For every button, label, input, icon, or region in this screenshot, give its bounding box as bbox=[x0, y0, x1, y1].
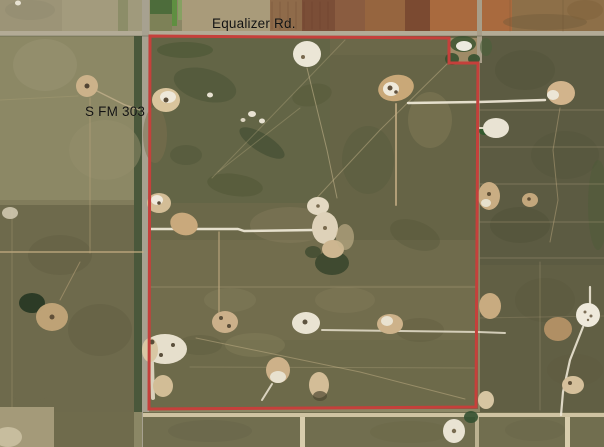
field-patch bbox=[430, 0, 512, 31]
pad-marking bbox=[584, 311, 587, 314]
well-pad bbox=[483, 118, 509, 138]
terrain-mottle bbox=[342, 126, 394, 194]
terrain-mottle bbox=[480, 38, 492, 56]
terrain-mottle bbox=[515, 278, 575, 322]
well-pad bbox=[547, 90, 559, 100]
field-patch-green bbox=[150, 0, 172, 14]
terrain-mottle bbox=[370, 421, 450, 443]
pad-marking bbox=[568, 381, 572, 385]
side-road-surface bbox=[565, 417, 570, 447]
terrain-mottle bbox=[490, 207, 550, 243]
well-pad bbox=[562, 376, 584, 394]
field-patch bbox=[302, 0, 335, 31]
fm303-verge bbox=[134, 36, 142, 412]
well-pad bbox=[576, 303, 600, 327]
pad-marking bbox=[301, 55, 305, 59]
field-patch bbox=[335, 0, 365, 31]
well-pad bbox=[544, 317, 572, 341]
equalizer-road-surface bbox=[0, 31, 604, 36]
pad-marking bbox=[590, 315, 593, 318]
well-pad bbox=[212, 311, 238, 333]
terrain-mottle bbox=[305, 246, 321, 258]
farm-building bbox=[456, 41, 472, 51]
pad-marking bbox=[587, 319, 589, 321]
pad-marking bbox=[527, 197, 531, 201]
field-strip-green bbox=[172, 0, 177, 26]
pad-marking bbox=[452, 429, 456, 433]
terrain-mottle bbox=[5, 0, 55, 20]
well-pad bbox=[481, 199, 491, 207]
pad-marking bbox=[164, 98, 169, 103]
pad-marking bbox=[227, 324, 231, 328]
pad-shadow bbox=[313, 391, 327, 401]
terrain-mottle bbox=[531, 131, 599, 179]
pad-marking bbox=[157, 201, 161, 205]
road-label-s-fm-303: S FM 303 bbox=[85, 104, 145, 119]
pad-marking bbox=[316, 204, 320, 208]
terrain-mottle bbox=[204, 288, 256, 312]
terrain-mottle bbox=[315, 287, 375, 313]
well-pad bbox=[479, 293, 501, 319]
well-pad bbox=[153, 375, 173, 397]
terrain-mottle bbox=[505, 419, 565, 441]
terrain-mottle bbox=[464, 411, 478, 423]
terrain-mottle bbox=[13, 39, 77, 91]
pad-marking bbox=[388, 86, 393, 91]
pad-marking bbox=[85, 84, 90, 89]
terrain-mottle bbox=[157, 42, 213, 58]
map-svg bbox=[0, 0, 604, 447]
terrain-mottle bbox=[143, 107, 167, 163]
well-pad bbox=[151, 195, 163, 205]
pad-marking bbox=[50, 315, 55, 320]
pad-marking bbox=[487, 192, 491, 196]
road-label-equalizer: Equalizer Rd. bbox=[212, 16, 296, 31]
well-pad bbox=[293, 41, 321, 67]
farm-building bbox=[207, 93, 213, 98]
well-pad bbox=[381, 316, 393, 326]
terrain-mottle bbox=[225, 333, 285, 357]
pad-marking bbox=[323, 226, 327, 230]
terrain-mottle bbox=[168, 420, 252, 442]
field-patch bbox=[405, 0, 430, 31]
field-patch bbox=[118, 0, 128, 31]
farm-building bbox=[259, 119, 265, 124]
terrain-bottom bbox=[54, 412, 134, 447]
access-road bbox=[152, 363, 153, 398]
terrain-mottle bbox=[408, 92, 452, 148]
pad-marking bbox=[303, 320, 308, 325]
terrain-mottle bbox=[567, 0, 603, 20]
field-strip-green bbox=[178, 0, 182, 20]
side-road-surface bbox=[300, 417, 305, 447]
side-road-surface bbox=[477, 0, 482, 63]
satellite-map: Equalizer Rd. S FM 303 bbox=[0, 0, 604, 447]
well-pad bbox=[336, 224, 354, 250]
farm-building bbox=[15, 1, 21, 6]
pad-marking bbox=[219, 316, 223, 320]
terrain-mottle bbox=[170, 145, 202, 165]
terrain-mottle bbox=[495, 50, 555, 90]
pad-marking bbox=[171, 343, 175, 347]
field-patch bbox=[150, 14, 172, 31]
pad-marking bbox=[394, 90, 398, 94]
field-patch bbox=[62, 0, 118, 31]
terrain-mottle bbox=[69, 120, 141, 180]
pad-marking bbox=[159, 353, 163, 357]
terrain-mottle bbox=[396, 318, 444, 342]
terrain-mottle bbox=[68, 304, 132, 356]
well-pad bbox=[270, 371, 286, 383]
farm-building bbox=[248, 111, 256, 117]
terrain-mottle bbox=[28, 235, 92, 275]
well-pad bbox=[478, 391, 494, 409]
bottom-road-surface bbox=[143, 413, 604, 417]
field-patch bbox=[365, 0, 405, 31]
farm-building bbox=[241, 118, 246, 122]
well-pad bbox=[2, 207, 18, 219]
